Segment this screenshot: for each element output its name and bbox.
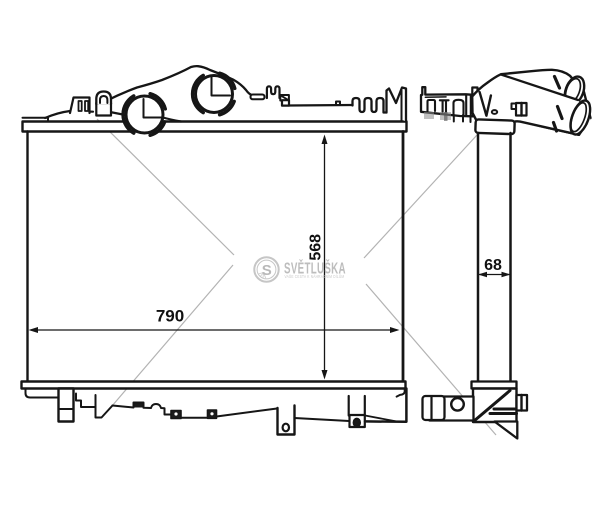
svg-text:568: 568 bbox=[308, 234, 325, 261]
svg-text:VAŠE CESTA K NÁHRADNÍM DÍLŮM: VAŠE CESTA K NÁHRADNÍM DÍLŮM bbox=[285, 274, 345, 280]
svg-text:S: S bbox=[262, 262, 272, 279]
svg-text:790: 790 bbox=[156, 307, 184, 326]
svg-text:68: 68 bbox=[484, 257, 502, 274]
